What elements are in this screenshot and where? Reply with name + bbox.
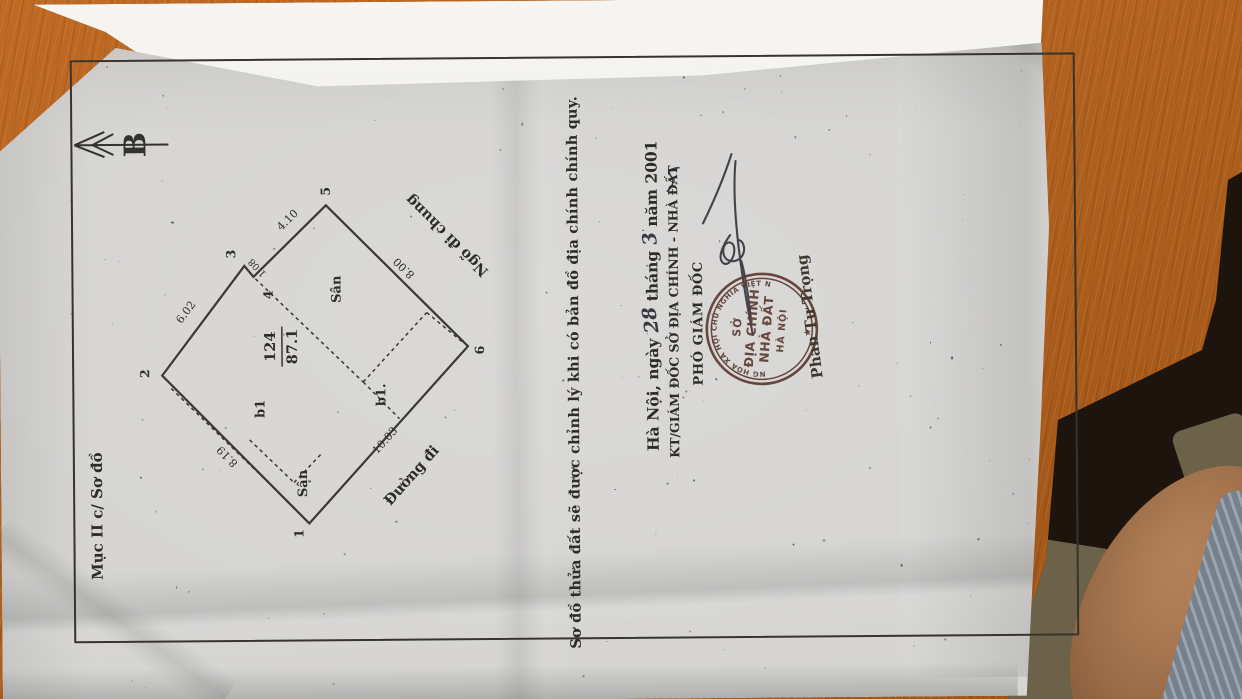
plot-boundary bbox=[161, 204, 469, 524]
vertex-1: 1 bbox=[291, 529, 306, 538]
approver-title-line2: PHÓ GIÁM ĐỐC bbox=[691, 261, 707, 385]
vertex-3: 3 bbox=[223, 250, 238, 259]
date-line: Hà Nội, ngày 28 tháng 3 năm 2001 bbox=[639, 140, 663, 451]
north-label: B bbox=[118, 132, 153, 158]
dim-10-03: 10.03 bbox=[370, 424, 401, 456]
region-house-main: b1 bbox=[253, 400, 268, 418]
date-thang: tháng bbox=[642, 251, 661, 302]
paper-group: B 1 2 3 4 5 6 bbox=[0, 0, 1242, 699]
region-labels: Sân b1 b1. Sân bbox=[252, 275, 390, 498]
date-month-handwritten: 3 bbox=[638, 231, 662, 247]
dim-4-10: 4.10 bbox=[274, 207, 301, 233]
dim-8-00: 8.00 bbox=[391, 255, 418, 281]
region-yard-bottom: Sân bbox=[296, 469, 311, 497]
vertex-4: 4 bbox=[261, 290, 276, 299]
diagram-layer: B 1 2 3 4 5 6 bbox=[0, 0, 1242, 699]
dim-6-02: 6.02 bbox=[173, 299, 198, 326]
vertex-6: 6 bbox=[472, 345, 487, 354]
region-yard-top: Sân bbox=[329, 275, 344, 303]
dim-1-08: 1.08 bbox=[246, 256, 269, 279]
section-label: Mục II c/ Sơ đồ bbox=[88, 452, 107, 580]
road-label: Đường đi bbox=[381, 442, 443, 509]
vertex-labels: 1 2 3 4 5 6 bbox=[136, 186, 489, 539]
approver-title-line1: KT/GIÁM ĐỐC SỞ ĐỊA CHÍNH - NHÀ ĐẤT bbox=[665, 165, 682, 457]
stamp-line4: HÀ NỘI bbox=[774, 308, 789, 353]
dim-8-19: 8.19 bbox=[214, 443, 240, 470]
region-house-small: b1. bbox=[374, 383, 389, 406]
parcel-area: 87.1 bbox=[284, 329, 301, 364]
parcel-number: 124 bbox=[262, 332, 279, 362]
parcel-number-area: 124 87.1 bbox=[262, 327, 301, 367]
vertex-5: 5 bbox=[318, 187, 333, 196]
date-day-handwritten: 28 bbox=[638, 305, 664, 334]
alley-label: Ngõ đi chung bbox=[402, 191, 492, 280]
date-prefix: Hà Nội, ngày bbox=[643, 339, 663, 452]
photo-of-land-plot-document: B 1 2 3 4 5 6 bbox=[0, 0, 1242, 699]
stamp-line1: SỞ bbox=[729, 317, 745, 338]
date-year: năm 2001 bbox=[641, 140, 661, 226]
vertex-2: 2 bbox=[137, 369, 152, 378]
